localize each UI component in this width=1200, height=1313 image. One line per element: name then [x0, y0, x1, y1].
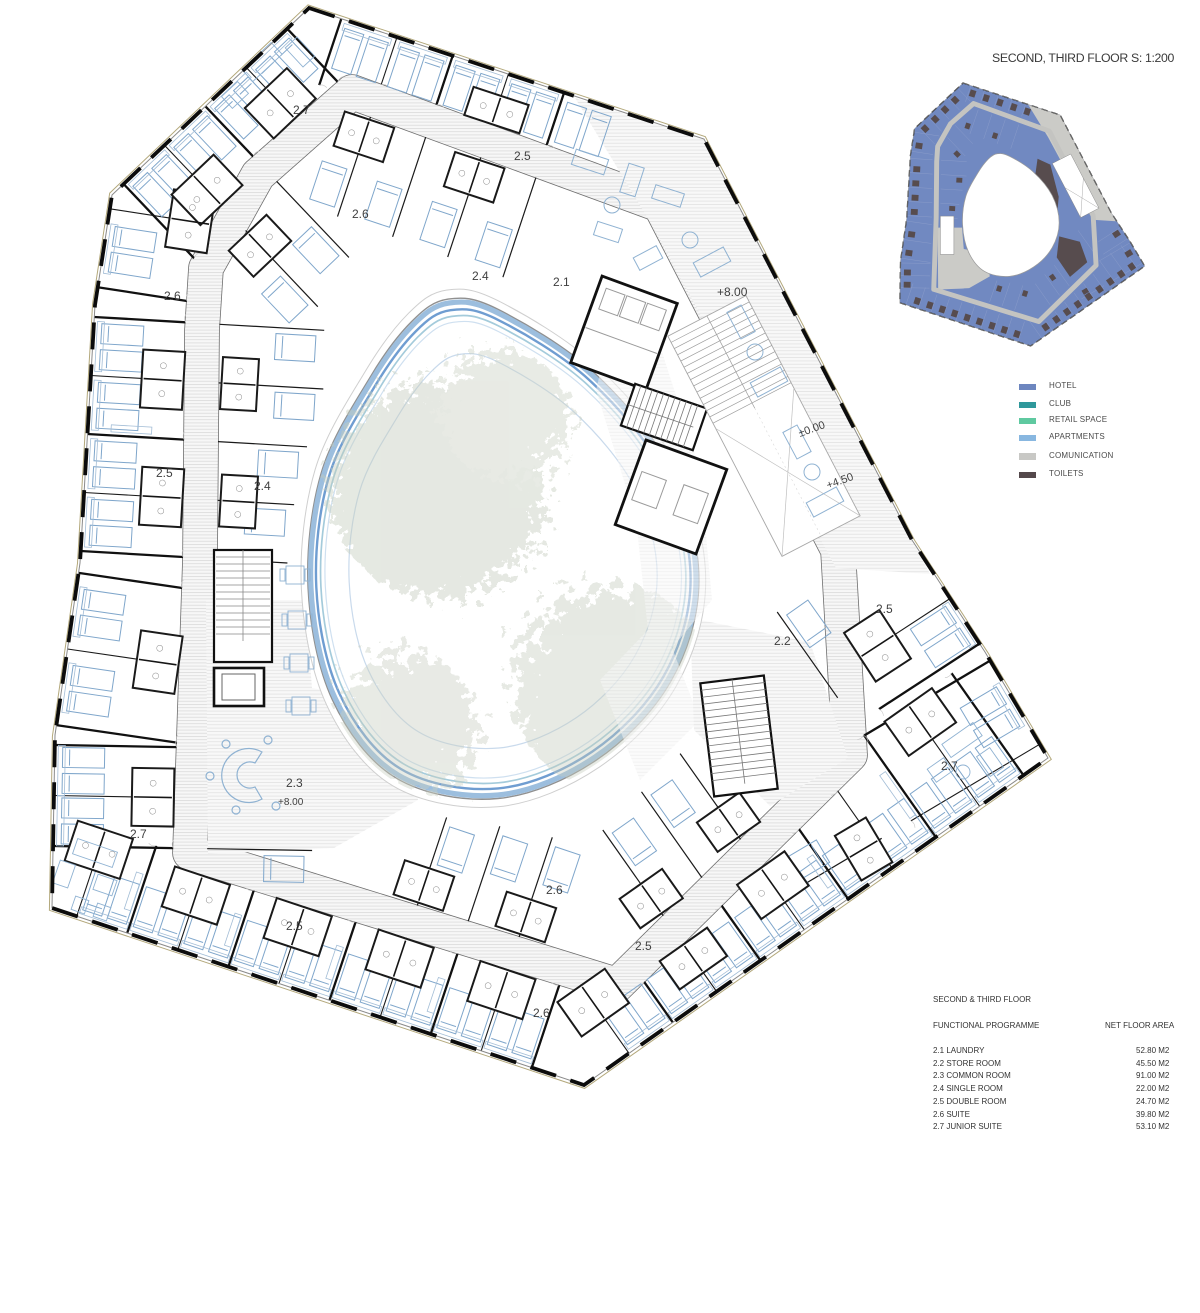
svg-text:2.7: 2.7 — [293, 103, 310, 117]
svg-text:2.5: 2.5 — [876, 602, 893, 616]
svg-text:2.6: 2.6 — [164, 289, 181, 303]
svg-text:2.5: 2.5 — [156, 466, 173, 480]
svg-text:+8.00: +8.00 — [717, 285, 748, 299]
svg-text:2.5: 2.5 — [514, 149, 531, 163]
svg-text:2.4: 2.4 — [254, 479, 271, 493]
svg-text:2.6: 2.6 — [352, 207, 369, 221]
svg-text:2.3: 2.3 — [286, 776, 303, 790]
svg-text:2.5: 2.5 — [286, 919, 303, 933]
svg-text:2.7: 2.7 — [941, 759, 958, 773]
svg-text:2.6: 2.6 — [546, 883, 563, 897]
svg-text:2.6: 2.6 — [533, 1006, 550, 1020]
svg-text:2.4: 2.4 — [472, 269, 489, 283]
svg-text:2.7: 2.7 — [130, 827, 147, 841]
svg-text:+8.00: +8.00 — [278, 797, 304, 808]
svg-text:2.5: 2.5 — [635, 939, 652, 953]
svg-text:2.2: 2.2 — [774, 634, 791, 648]
svg-text:2.1: 2.1 — [553, 275, 570, 289]
